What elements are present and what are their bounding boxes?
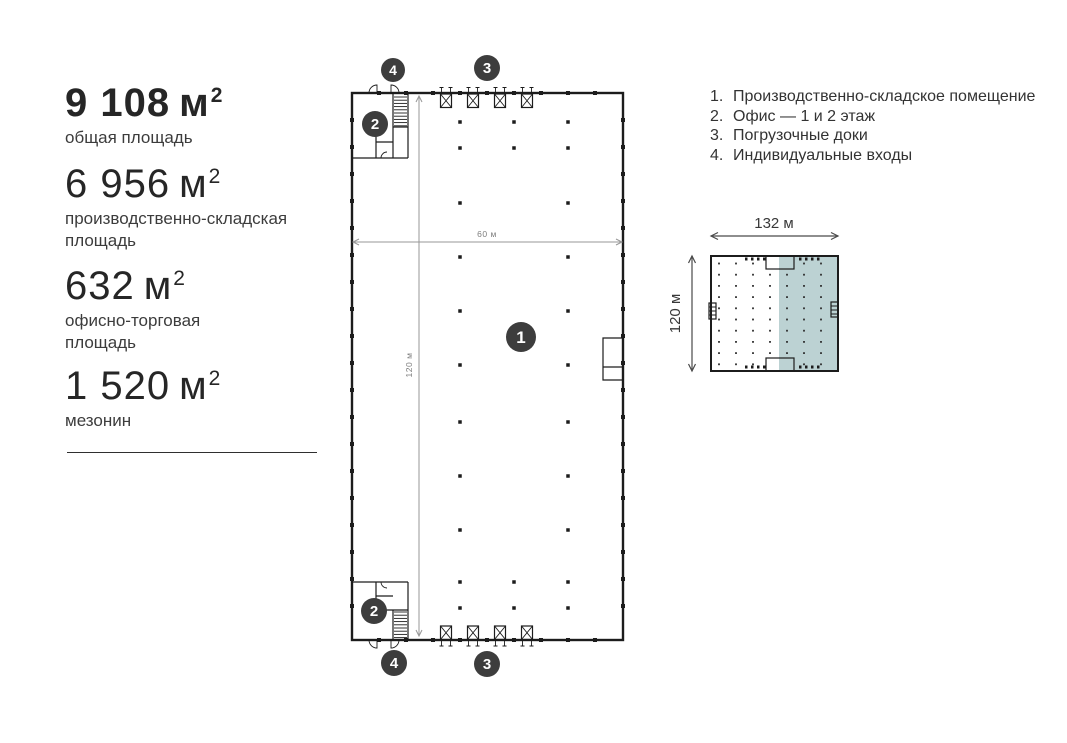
column-grid (458, 120, 570, 610)
minimap: 132 м 120 м (667, 215, 838, 371)
dimension-width-label: 60 м (477, 229, 497, 239)
plan-outline (352, 93, 623, 640)
dimension-width: 60 м (353, 229, 622, 245)
badge-docks-top: 3 (474, 55, 500, 81)
badge-office-bottom: 2 (361, 598, 387, 624)
dimension-height-label: 120 м (404, 353, 414, 378)
warehouse-plan: 60 м 120 м 4 3 2 1 2 4 3 (350, 55, 625, 677)
staircase (394, 612, 407, 638)
badge-warehouse: 1 (506, 322, 536, 352)
badge-entrance-bottom: 4 (381, 650, 407, 676)
loading-docks-top (440, 88, 534, 108)
dimension-height: 120 м (404, 96, 422, 636)
badge-number: 1 (516, 328, 525, 347)
wall-pilasters (350, 91, 625, 642)
floorplan-graphic: 60 м 120 м 4 3 2 1 2 4 3 (0, 0, 1067, 743)
minimap-dimension-width: 132 м (711, 215, 838, 240)
tech-room (603, 338, 623, 380)
door-swing (381, 152, 387, 158)
badge-entrance-top: 4 (381, 58, 405, 82)
badge-number: 3 (483, 60, 491, 77)
badge-office-top: 2 (362, 111, 388, 137)
badge-number: 3 (483, 656, 491, 673)
badge-number: 4 (390, 655, 399, 672)
badge-number: 2 (371, 116, 379, 133)
minimap-height-label: 120 м (667, 294, 684, 334)
badge-docks-bottom: 3 (474, 651, 500, 677)
staircase (394, 97, 407, 126)
minimap-dimension-height: 120 м (667, 256, 696, 371)
door-swing (381, 582, 387, 588)
badge-number: 2 (370, 603, 378, 620)
badge-number: 4 (389, 62, 397, 78)
minimap-width-label: 132 м (754, 215, 794, 232)
loading-docks-bottom (440, 626, 534, 646)
